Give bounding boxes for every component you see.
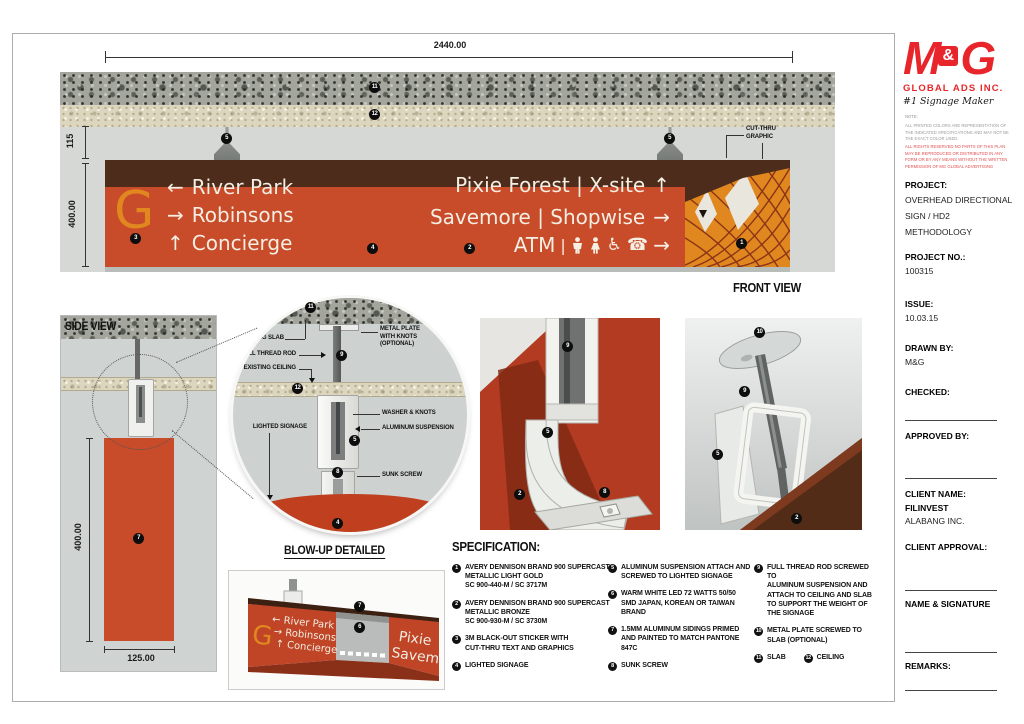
callout-marker-2: 2 <box>464 243 475 254</box>
arrow-left-icon: ← <box>167 175 184 199</box>
blowup-signage-section <box>248 494 452 532</box>
callout-marker-11: 11 <box>305 302 316 313</box>
issue-value: 10.03.15 <box>905 310 938 326</box>
leader-line <box>285 339 305 340</box>
spec-item-5: 5ALUMINUM SUSPENSION ATTACH AND SCREWED … <box>608 563 754 581</box>
signature-line <box>905 690 997 691</box>
arrow-right-icon: → <box>653 233 670 257</box>
callout-marker-7: 7 <box>133 533 144 544</box>
signature-line <box>905 590 997 591</box>
wheelchair-icon: ♿ <box>607 235 622 255</box>
dim-tick <box>174 646 175 653</box>
name-signature-label: NAME & SIGNATURE <box>905 599 990 609</box>
atm-row: ATM | ♿ ☎ → <box>335 233 670 257</box>
dimension-line <box>105 57 793 58</box>
label-aluminum-suspension: ALUMINUM SUSPENSION <box>382 425 458 433</box>
copyright-text: ALL RIGHTS RESERVED NO PARTS OF THIS PLA… <box>905 144 1011 170</box>
project-no-value: 100315 <box>905 263 933 279</box>
dimension-height-front: 400.00 <box>67 194 77 234</box>
logo-g: G <box>960 32 991 84</box>
leader-arrow <box>321 352 326 358</box>
detail-view-rod-plate <box>685 318 862 530</box>
spec-num-4: 4 <box>452 662 461 671</box>
sign-label: River Park <box>192 175 293 199</box>
label-metal-plate: METAL PLATE WITH KNOTS (OPTIONAL) <box>380 326 440 349</box>
spec-num-7: 7 <box>608 626 617 635</box>
signature-line <box>905 478 997 479</box>
leader-arrow <box>355 426 360 432</box>
drawing-sheet: 2440.00 115 400.00 G ←River Pa <box>0 0 1024 724</box>
dim-tick <box>86 641 93 642</box>
leader-line <box>726 135 727 158</box>
spec-item-8: 8SUNK SCREW <box>608 661 754 671</box>
leader-line <box>726 135 744 136</box>
arrow-up-icon: ↑ <box>167 231 184 255</box>
remarks-label: REMARKS: <box>905 661 951 671</box>
client-name-value2: ALABANG INC. <box>905 513 965 529</box>
sign-label: ATM <box>514 233 556 257</box>
leader-line <box>269 433 270 495</box>
callout-marker-8: 8 <box>332 467 343 478</box>
callout-marker-9: 9 <box>336 350 347 361</box>
sign-label: Robinsons <box>192 203 294 227</box>
lattice-graphic <box>685 160 790 267</box>
spec-num-12: 12 <box>804 654 813 663</box>
callout-marker-8: 8 <box>599 487 610 498</box>
callout-marker-4: 4 <box>332 518 343 529</box>
sign-label: Concierge <box>192 231 293 255</box>
label-sunk-screw: SUNK SCREW <box>382 472 442 480</box>
spec-column-3: 9FULL THREAD ROD SCREWED TO ALUMINUM SUS… <box>754 563 874 671</box>
man-icon <box>571 237 584 254</box>
spec-item-3: 33M BLACK-OUT STICKER WITH CUT-THRU TEXT… <box>452 634 622 652</box>
callout-marker-7: 7 <box>354 601 365 612</box>
callout-marker-1: 1 <box>736 238 747 249</box>
callout-marker-10: 10 <box>754 327 765 338</box>
phone-icon: ☎ <box>627 235 648 255</box>
spec-num-10: 10 <box>754 627 763 636</box>
spec-item-6: 6WARM WHITE LED 72 WATTS 50/50 SMD JAPAN… <box>608 589 754 617</box>
rod-plate-illustration <box>685 318 862 530</box>
note-label: NOTE: <box>905 114 1011 121</box>
logo-m: M <box>903 32 936 84</box>
dim-tick <box>82 158 89 159</box>
label-washer-knots: WASHER & KNOTS <box>382 410 452 418</box>
dim-tick <box>104 646 105 653</box>
blowup-title: BLOW-UP DETAILED <box>284 545 385 559</box>
client-name-value1: FILINVEST <box>905 503 948 513</box>
spec-num-11: 11 <box>754 654 763 663</box>
dim-line <box>89 438 90 641</box>
callout-marker-5: 5 <box>349 435 360 446</box>
label-existing-ceiling: EXISTING CEILING <box>238 365 296 373</box>
perspective-sign-panel: G ← River Park → Robinsons ↑ Concierge P… <box>228 570 445 690</box>
callout-marker-5: 5 <box>221 133 232 144</box>
label-existing-slab: EXISTING SLAB <box>238 335 284 343</box>
spec-item-4: 4LIGHTED SIGNAGE <box>452 661 622 671</box>
dim-tick <box>82 266 89 267</box>
issue-label: ISSUE: <box>905 299 933 309</box>
specification-title: SPECIFICATION: <box>452 540 540 554</box>
callout-marker-2: 2 <box>791 513 802 524</box>
dim-tick <box>792 51 793 63</box>
spec-item-7: 71.5MM ALUMINUM SIDINGS PRIMED AND PAINT… <box>608 625 754 653</box>
side-view-panel: SIDE VIEW 400.00 125.00 <box>60 315 217 672</box>
spec-num-3: 3 <box>452 635 461 644</box>
spec-item-2: 2AVERY DENNISON BRAND 900 SUPERCAST META… <box>452 599 622 627</box>
signature-line <box>905 420 997 421</box>
arrow-up-icon: ↑ <box>653 173 670 197</box>
callout-marker-12: 12 <box>292 383 303 394</box>
label-full-thread-rod: FULL THREAD ROD <box>238 351 296 359</box>
front-sign-board: G ←River Park →Robinsons ↑Concierge Pixi… <box>105 160 790 267</box>
dim-line-115 <box>85 126 86 158</box>
callout-marker-5: 5 <box>712 449 723 460</box>
dimension-height-side: 400.00 <box>73 517 83 557</box>
leader-line <box>299 369 311 370</box>
side-view-label: SIDE VIEW <box>65 321 116 333</box>
cut-thru-label: CUT-THRU GRAPHIC <box>746 126 788 141</box>
spec-item-11-12: 11SLAB 12CEILING <box>754 653 874 663</box>
spec-num-5: 5 <box>608 564 617 573</box>
signature-line <box>905 652 997 653</box>
dim-line <box>104 649 174 650</box>
leader-line <box>311 369 312 378</box>
leader-line <box>299 355 321 356</box>
spec-item-10: 10METAL PLATE SCREWED TO SLAB (OPTIONAL) <box>754 626 874 644</box>
spec-num-2: 2 <box>452 600 461 609</box>
dim-tick <box>105 51 106 63</box>
checked-label: CHECKED: <box>905 387 950 397</box>
spec-column-2: 5ALUMINUM SUSPENSION ATTACH AND SCREWED … <box>608 563 754 679</box>
leader-line <box>357 476 380 477</box>
blowup-suspension <box>317 395 359 469</box>
leader-arrow <box>309 378 315 383</box>
dim-tick <box>82 126 89 127</box>
spec-column-1: 1AVERY DENNISON BRAND 900 SUPERCAST META… <box>452 563 622 679</box>
project-no-label: PROJECT NO.: <box>905 252 965 262</box>
logo-ampersand: & <box>938 46 958 66</box>
leader-arrow <box>267 495 273 500</box>
dimension-gap: 115 <box>65 129 75 153</box>
existing-slab <box>60 72 835 105</box>
callout-marker-9: 9 <box>562 341 573 352</box>
sign-label: Pixie Forest | X-site <box>455 173 645 197</box>
perspective-g: G <box>251 620 274 652</box>
spec-num-8: 8 <box>608 662 617 671</box>
spec-item-1: 1AVERY DENNISON BRAND 900 SUPERCAST META… <box>452 563 622 591</box>
leader-line <box>353 414 380 415</box>
dimension-depth: 125.00 <box>119 653 163 663</box>
drawn-by-label: DRAWN BY: <box>905 343 953 353</box>
arrow-right-icon: → <box>167 203 184 227</box>
approved-by-label: APPROVED BY: <box>905 431 969 441</box>
woman-icon <box>589 237 602 254</box>
callout-marker-11: 11 <box>369 82 380 93</box>
logo-block: M&G GLOBAL ADS INC. #1 Signage Maker <box>903 34 1021 107</box>
dimension-width: 2440.00 <box>415 40 485 50</box>
dim-tick <box>86 438 93 439</box>
leader-line <box>361 332 378 333</box>
sign-shadow <box>105 267 790 272</box>
project-label: PROJECT: <box>905 180 947 190</box>
detail-focus-circle <box>92 354 188 450</box>
leader-line <box>361 429 380 430</box>
callout-marker-5: 5 <box>664 133 675 144</box>
leader-line <box>305 320 306 339</box>
divider-bar: | <box>560 236 565 255</box>
leader-line <box>762 143 763 159</box>
callout-marker-12: 12 <box>369 109 380 120</box>
logo-tagline: #1 Signage Maker <box>903 96 1021 107</box>
spec-num-9: 9 <box>754 564 763 573</box>
front-view-label: FRONT VIEW <box>733 281 801 295</box>
note-text: ALL PRINTED COLORS ARE REPRESENTATION OF… <box>905 123 1011 143</box>
spec-item-9: 9FULL THREAD ROD SCREWED TO ALUMINUM SUS… <box>754 563 874 618</box>
blowup-slab <box>233 298 467 324</box>
blowup-detail-circle: EXISTING SLAB FULL THREAD ROD EXISTING C… <box>233 298 467 532</box>
sign-letter-g: G <box>114 184 154 238</box>
logo-company: GLOBAL ADS INC. <box>903 83 1021 94</box>
drawn-by-value: M&G <box>905 354 924 370</box>
arrow-right-icon: → <box>653 205 670 229</box>
dim-tick <box>82 163 89 164</box>
spec-num-1: 1 <box>452 564 461 573</box>
label-lighted-signage: LIGHTED SIGNAGE <box>249 424 307 432</box>
spec-num-6: 6 <box>608 590 617 599</box>
dim-line-400 <box>85 163 86 266</box>
perspective-sign-illustration: G ← River Park → Robinsons ↑ Concierge P… <box>229 571 444 689</box>
mg-logo: M&G <box>903 34 1021 82</box>
existing-ceiling <box>60 105 835 128</box>
client-name-label: CLIENT NAME: <box>905 489 966 499</box>
client-approval-label: CLIENT APPROVAL: <box>905 542 987 552</box>
callout-marker-6: 6 <box>354 622 365 633</box>
suspension-rod <box>336 402 340 454</box>
callout-marker-2: 2 <box>514 489 525 500</box>
callout-marker-9: 9 <box>739 386 750 397</box>
callout-marker-3: 3 <box>130 233 141 244</box>
project-value: OVERHEAD DIRECTIONAL SIGN / HD2 METHODOL… <box>905 192 1020 240</box>
sign-label: Savemore | Shopwise <box>430 205 645 229</box>
callout-marker-4: 4 <box>367 243 378 254</box>
callout-marker-5: 5 <box>542 427 553 438</box>
